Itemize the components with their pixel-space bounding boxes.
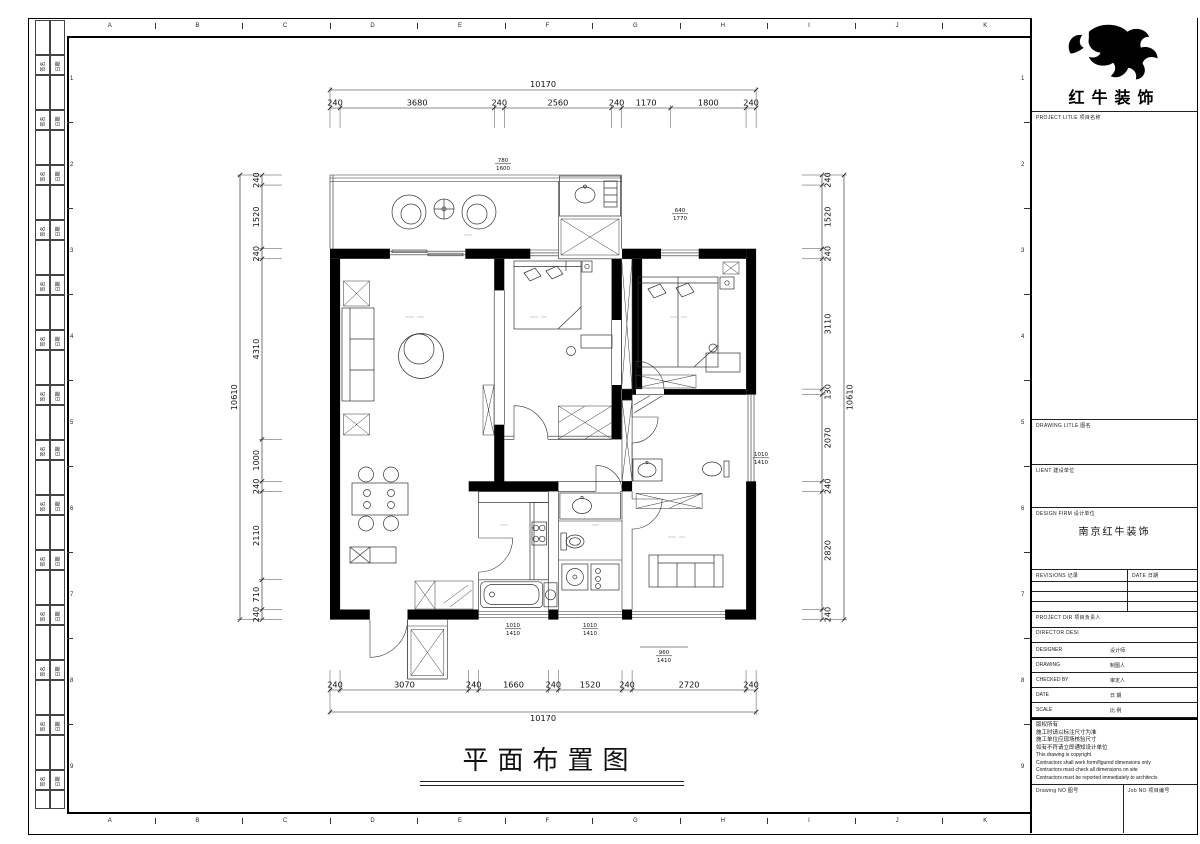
grid-tick (592, 23, 593, 29)
signoff-cell (50, 735, 65, 770)
grid-number-right: 7 (1021, 592, 1029, 598)
signoff-cell (35, 790, 50, 809)
dim-label: 2720 (679, 680, 700, 690)
grid-letter-bottom: A (108, 818, 116, 824)
grid-letter-bottom: C (283, 818, 291, 824)
project-dir-section: PROJECT DIR 项目负责人 (1032, 612, 1197, 628)
design-firm-value: 南京红牛装饰 (1032, 523, 1197, 538)
grid-letter-bottom: E (458, 818, 466, 824)
grid-tick (330, 818, 331, 824)
dim-label: 130 (823, 384, 833, 400)
dim-label: 240 (743, 680, 759, 690)
grid-number-left: 4 (70, 334, 78, 340)
dim-label: 240 (546, 680, 562, 690)
job-no-label: Job NO 项目编号 (1124, 785, 1170, 794)
grid-tick (330, 23, 331, 29)
grid-number-right: 6 (1021, 506, 1029, 512)
signoff-cell (50, 130, 65, 165)
dim-label: 3680 (407, 98, 428, 108)
title-block: 红牛装饰 PROJECT LITLE 项目名称 DRAWING LITLE 图名… (1030, 18, 1197, 833)
signoff-cell (35, 20, 50, 55)
dim-label: 240 (251, 478, 261, 494)
staff-row: DRAWING制图人 (1032, 658, 1197, 673)
signoff-label-cell: 签名 (35, 770, 50, 790)
signoff-label-cell: 签名 (35, 220, 50, 240)
grid-number-left: 8 (70, 678, 78, 684)
grid-letter-bottom: D (370, 818, 378, 824)
signoff-label-cell: 日期 (50, 385, 65, 405)
signoff-label-cell: 日期 (50, 275, 65, 295)
grid-letter-top: C (283, 23, 291, 29)
grid-tick (1024, 208, 1030, 209)
logo-section: 红牛装饰 (1032, 18, 1197, 112)
signoff-cell (35, 460, 50, 495)
signoff-cell (50, 350, 65, 385)
grid-tick (855, 818, 856, 824)
svg-text:1410: 1410 (506, 631, 520, 637)
dim-label: 240 (823, 172, 833, 188)
grid-number-left: 9 (70, 764, 78, 770)
svg-text:1410: 1410 (583, 631, 597, 637)
svg-text:960: 960 (659, 650, 670, 656)
signoff-label-cell: 签名 (35, 385, 50, 405)
signoff-cell (50, 570, 65, 605)
grid-number-left: 1 (70, 76, 78, 82)
dim-label: 1800 (698, 98, 719, 108)
footer-section: Drawing NO 图号 Job NO 项目编号 (1032, 785, 1197, 833)
dim-label: 1000 (251, 450, 261, 471)
signoff-cell (35, 75, 50, 110)
dim-label: 240 (823, 478, 833, 494)
grid-letter-bottom: H (721, 818, 729, 824)
signoff-cell (50, 20, 65, 55)
dim-label: 240 (251, 172, 261, 188)
signoff-label-cell: 日期 (50, 495, 65, 515)
grid-letter-top: F (546, 23, 554, 29)
dim-label: 1520 (251, 206, 261, 227)
grid-tick (505, 818, 506, 824)
signoff-cell (50, 295, 65, 330)
dim-label: 1170 (636, 98, 657, 108)
grid-tick (155, 23, 156, 29)
grid-number-right: 2 (1021, 162, 1029, 168)
design-firm-label: DESIGN FIRM 设计单位 (1032, 508, 1197, 517)
grid-number-right: 3 (1021, 248, 1029, 254)
signoff-label-cell: 日期 (50, 110, 65, 130)
dim-label: 240 (609, 98, 625, 108)
signoff-cell (50, 460, 65, 495)
grid-tick (1024, 552, 1030, 553)
grid-letter-top: K (983, 23, 991, 29)
signoff-cell (50, 405, 65, 440)
dim-label: 240 (491, 98, 507, 108)
grid-tick (242, 818, 243, 824)
grid-tick (592, 818, 593, 824)
signoff-label-cell: 签名 (35, 660, 50, 680)
signoff-label-cell: 签名 (35, 550, 50, 570)
signoff-label-cell: 日期 (50, 605, 65, 625)
project-title-label: PROJECT LITLE 项目名称 (1032, 112, 1197, 121)
signoff-cell (35, 625, 50, 660)
grid-letter-top: A (108, 23, 116, 29)
signoff-label-cell: 日期 (50, 715, 65, 735)
dim-label: 10610 (229, 384, 239, 410)
grid-tick (417, 23, 418, 29)
dim-label: 240 (327, 680, 343, 690)
drawing-title-label: DRAWING LITLE 图名 (1032, 420, 1197, 429)
grid-tick (855, 23, 856, 29)
signoff-label-cell: 签名 (35, 275, 50, 295)
grid-letter-top: J (896, 23, 904, 29)
signoff-label-cell: 签名 (35, 715, 50, 735)
grid-number-left: 7 (70, 592, 78, 598)
grid-tick (1024, 724, 1030, 725)
signoff-cell (50, 515, 65, 550)
svg-text:1600: 1600 (496, 166, 510, 172)
grid-tick (67, 380, 73, 381)
revision-row (1032, 592, 1197, 602)
grid-number-left: 5 (70, 420, 78, 426)
grid-tick (1024, 122, 1030, 123)
svg-text:780: 780 (498, 158, 509, 164)
grid-letter-bottom: G (633, 818, 641, 824)
floor-plan-svg: 780 1600 640 1770 1010 1410 1010 1410 96… (200, 55, 900, 735)
dimension-chains: 2403680240256024011701800240101702403070… (229, 79, 855, 723)
grid-tick (67, 466, 73, 467)
signoff-label-cell: 日期 (50, 770, 65, 790)
dim-label: 240 (327, 98, 343, 108)
project-title-section: PROJECT LITLE 项目名称 (1032, 112, 1197, 420)
signoff-label-cell: 日期 (50, 550, 65, 570)
dim-label: 2110 (251, 525, 261, 546)
signoff-cell (50, 75, 65, 110)
revisions-section: REVISIONS 记录 DATE 日期 (1032, 570, 1197, 612)
grid-tick (942, 818, 943, 824)
dim-label: 10170 (530, 713, 556, 723)
signoff-cell (35, 680, 50, 715)
signoff-cell (50, 185, 65, 220)
signoff-cell (50, 790, 65, 809)
signoff-cell (35, 570, 50, 605)
revision-row (1032, 602, 1197, 612)
grid-letter-top: G (633, 23, 641, 29)
drawing-title-section: DRAWING LITLE 图名 (1032, 420, 1197, 465)
grid-letter-top: B (195, 23, 203, 29)
dim-label: 240 (251, 607, 261, 623)
director-label: DIRECTOR DESI (1032, 628, 1197, 636)
signoff-label-cell: 日期 (50, 330, 65, 350)
signoff-cell (35, 405, 50, 440)
signoff-label-cell: 签名 (35, 165, 50, 185)
staff-row: DESIGNER设计师 (1032, 643, 1197, 658)
dim-label: 240 (466, 680, 482, 690)
grid-tick (242, 23, 243, 29)
dim-label: 1520 (823, 206, 833, 227)
grid-letter-top: D (370, 23, 378, 29)
signoff-label-cell: 日期 (50, 440, 65, 460)
dim-label: 1660 (503, 680, 524, 690)
grid-number-right: 1 (1021, 76, 1029, 82)
revision-row (1032, 582, 1197, 592)
walls (330, 249, 756, 620)
grid-tick (155, 818, 156, 824)
grid-number-left: 2 (70, 162, 78, 168)
revisions-date-header: DATE 日期 (1128, 570, 1158, 581)
dim-label: 3070 (394, 680, 415, 690)
grid-letter-bottom: I (808, 818, 816, 824)
copyright-section: 版权所有施工时请以标注尺寸为准施工单位应现场核验尺寸如有不符请立即通知设计单位T… (1032, 718, 1197, 785)
signoff-label-cell: 日期 (50, 55, 65, 75)
title-underline-1 (420, 781, 684, 782)
grid-tick (67, 208, 73, 209)
svg-text:1770: 1770 (673, 216, 687, 222)
staff-row: SCALE比 例 (1032, 703, 1197, 718)
director-section: DIRECTOR DESI (1032, 628, 1197, 643)
project-dir-label: PROJECT DIR 项目负责人 (1032, 612, 1197, 621)
signoff-label-cell: 签名 (35, 440, 50, 460)
drawing-no-label: Drawing NO 图号 (1032, 785, 1123, 794)
signoff-cell (35, 350, 50, 385)
grid-tick (1024, 638, 1030, 639)
dim-label: 240 (743, 98, 759, 108)
grid-tick (1024, 294, 1030, 295)
grid-number-right: 9 (1021, 764, 1029, 770)
client-section: LIENT 建设单位 (1032, 465, 1197, 508)
grid-tick (67, 294, 73, 295)
signoff-label-cell: 日期 (50, 660, 65, 680)
grid-tick (680, 23, 681, 29)
dim-label: 710 (251, 587, 261, 603)
signoff-cell (35, 130, 50, 165)
dim-label: 10170 (530, 79, 556, 89)
company-logo-bull-icon (1054, 20, 1174, 82)
grid-letter-bottom: F (546, 818, 554, 824)
dim-label: 3110 (823, 314, 833, 335)
grid-tick (1024, 466, 1030, 467)
client-label: LIENT 建设单位 (1032, 465, 1197, 474)
signoff-cell (50, 240, 65, 275)
signoff-cell (35, 295, 50, 330)
dim-label: 2070 (823, 428, 833, 449)
signoff-label-cell: 签名 (35, 110, 50, 130)
grid-tick (767, 23, 768, 29)
signoff-cell (50, 625, 65, 660)
staff-rows: DESIGNER设计师DRAWING制图人CHECKED BY审定人DATE日 … (1032, 643, 1197, 718)
dim-label: 4310 (251, 339, 261, 360)
revisions-header: REVISIONS 记录 (1032, 570, 1128, 581)
signoff-cell (35, 735, 50, 770)
grid-number-right: 5 (1021, 420, 1029, 426)
signoff-label-cell: 日期 (50, 220, 65, 240)
staff-row: DATE日 期 (1032, 688, 1197, 703)
svg-text:1010: 1010 (583, 623, 597, 629)
design-firm-section: DESIGN FIRM 设计单位 南京红牛装饰 (1032, 508, 1197, 570)
grid-tick (767, 818, 768, 824)
dim-label: 240 (251, 246, 261, 262)
signoff-label-cell: 日期 (50, 165, 65, 185)
staff-row: CHECKED BY审定人 (1032, 673, 1197, 688)
drawing-sheet: 780 1600 640 1770 1010 1410 1010 1410 96… (0, 0, 1200, 844)
svg-text:640: 640 (675, 208, 686, 214)
grid-tick (505, 23, 506, 29)
company-name: 红牛装饰 (1032, 84, 1197, 108)
signoff-label-cell: 签名 (35, 330, 50, 350)
grid-number-right: 4 (1021, 334, 1029, 340)
signoff-cell (35, 240, 50, 275)
grid-letter-bottom: J (896, 818, 904, 824)
dim-label: 240 (619, 680, 635, 690)
grid-letter-top: H (721, 23, 729, 29)
dim-label: 2820 (823, 540, 833, 561)
grid-number-right: 8 (1021, 678, 1029, 684)
hatch-boxes (344, 219, 740, 679)
title-underline-2 (420, 785, 684, 786)
svg-text:1410: 1410 (754, 460, 768, 466)
grid-number-left: 6 (70, 506, 78, 512)
signoff-label-cell: 签名 (35, 605, 50, 625)
dim-label: 1520 (580, 680, 601, 690)
grid-letter-bottom: B (195, 818, 203, 824)
grid-tick (680, 818, 681, 824)
signoff-cell (35, 515, 50, 550)
grid-tick (67, 638, 73, 639)
drawing-title: 平面布置图 (415, 740, 685, 777)
dim-label: 240 (823, 246, 833, 262)
signoff-label-cell: 签名 (35, 495, 50, 515)
grid-letter-top: E (458, 23, 466, 29)
grid-tick (417, 818, 418, 824)
svg-text:1010: 1010 (754, 452, 768, 458)
dim-label: 2560 (548, 98, 569, 108)
grid-tick (67, 122, 73, 123)
signoff-label-cell: 签名 (35, 55, 50, 75)
signoff-cell (35, 185, 50, 220)
grid-number-left: 3 (70, 248, 78, 254)
dim-label: 10610 (845, 384, 855, 410)
signoff-cell (50, 680, 65, 715)
grid-tick (67, 724, 73, 725)
dim-label: 240 (823, 607, 833, 623)
grid-tick (1024, 380, 1030, 381)
grid-tick (67, 552, 73, 553)
svg-text:1410: 1410 (657, 658, 671, 664)
grid-letter-bottom: K (983, 818, 991, 824)
grid-tick (942, 23, 943, 29)
grid-letter-top: I (808, 23, 816, 29)
svg-text:1010: 1010 (506, 623, 520, 629)
partitions-windows (330, 175, 754, 618)
